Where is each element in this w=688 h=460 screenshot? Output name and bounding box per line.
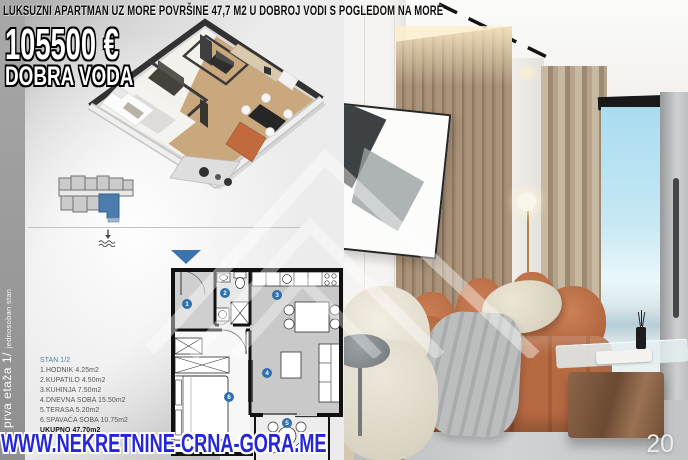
listing-page: prva etaža 1/ jednosoban stan — [0, 0, 688, 460]
coffee-table-base — [568, 372, 664, 438]
side-table — [358, 364, 362, 436]
room-list-item: 2.KUPATILO 4.50m2 — [40, 376, 128, 386]
room-number-badge: 5 — [282, 418, 292, 428]
interior-photo — [344, 0, 688, 460]
room-list-item: 6.SPAVAĆA SOBA 10.75m2 — [40, 416, 128, 426]
floor-label: prva etaža 1/ — [0, 352, 14, 428]
divider-line — [28, 227, 300, 228]
room-list-item: 5.TERASA 5.20m2 — [40, 406, 128, 416]
floor-unit-label: prva etaža 1/ jednosoban stan — [0, 258, 26, 428]
door-handle — [673, 178, 679, 318]
floor-lamp — [527, 210, 529, 272]
unit-type-label: jednosoban stan — [4, 289, 13, 349]
spot-light-glow — [514, 64, 540, 110]
cove-light-glow — [396, 26, 512, 86]
room-number-badge: 6 — [224, 392, 234, 402]
room-list-item: 1.HODNIK 4.25m2 — [40, 366, 128, 376]
room-number-badge: 2 — [220, 288, 230, 298]
room-list-item: 4.DNEVNA SOBA 15.50m2 — [40, 396, 128, 406]
room-list: STAN 1/2 1.HODNIK 4.25m2 2.KUPATILO 4.50… — [40, 356, 128, 436]
room-number-badge: 4 — [262, 368, 272, 378]
wall-art — [344, 102, 451, 259]
unit-label: STAN 1/2 — [40, 356, 128, 366]
highlighted-unit — [99, 194, 119, 218]
decor-vase — [636, 327, 646, 349]
entrance-marker-icon — [171, 250, 201, 264]
sea-direction-icon — [97, 229, 119, 247]
location: DOBRA VODA — [5, 61, 133, 92]
room-number-badge: 1 — [182, 299, 192, 309]
website-watermark: WWW.NEKRETNINE-CRNA-GORA.ME — [1, 428, 327, 459]
room-list-item: 3.KUHINJA 7.50m2 — [40, 386, 128, 396]
room-number-badge: 3 — [272, 290, 282, 300]
floor-lamp-globe — [518, 193, 536, 211]
listing-title: LUKSUZNI APARTMAN UZ MORE POVRŠINE 47,7 … — [3, 3, 423, 18]
building-plan — [56, 172, 138, 228]
page-number: 20 — [646, 430, 674, 459]
floor-plan-3d — [88, 14, 328, 189]
